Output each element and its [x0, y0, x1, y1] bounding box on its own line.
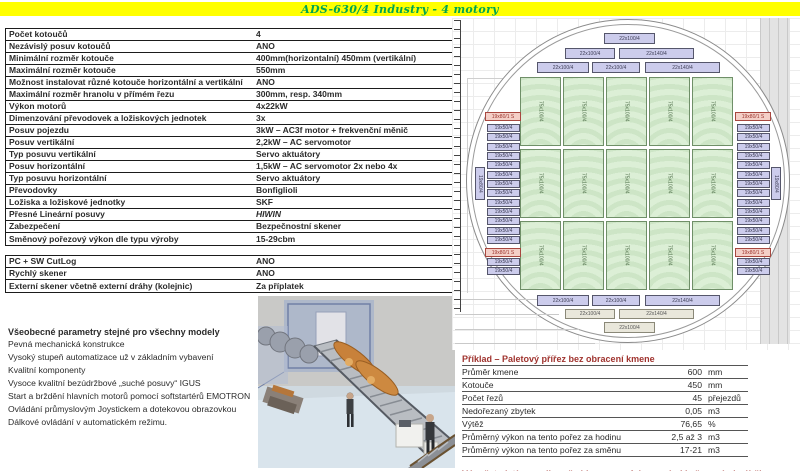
side-board-right-label: 19x50/4: [745, 200, 763, 206]
example-label: Nedořezaný zbytek: [462, 406, 658, 416]
side-board-right: 19x50/4: [737, 199, 770, 207]
example-row: Nedořezaný zbytek0,05m3: [462, 405, 748, 418]
side-board-left: 19x50/4: [487, 124, 520, 132]
green-block: 75x100/4: [520, 77, 561, 146]
machine-illustration: [258, 296, 455, 468]
example-label: Průměrný výkon na tento pořez za hodinu: [462, 432, 658, 442]
green-block-label: 75x100/4: [538, 173, 544, 194]
side-board-right-label: 19x50/4: [745, 268, 763, 274]
example-unit: %: [708, 419, 748, 429]
cut-board-label: 22x100/4: [619, 36, 640, 42]
spec-label: Počet kotoučů: [6, 29, 253, 40]
example-value: 450: [658, 380, 708, 390]
spec-value: 2,2kW – AC servomotor: [253, 137, 456, 148]
spec-label: Převodovky: [6, 185, 253, 196]
dimension-line: [455, 329, 579, 330]
example-value: 45: [658, 393, 708, 403]
side-board-right-label: 19x50/4: [745, 218, 763, 224]
side-board-right-label: 19x50/4: [745, 237, 763, 243]
example-row: Počet řezů45přejezdů: [462, 392, 748, 405]
spec-label: Typ posuvu horizontální: [6, 173, 253, 184]
side-board-left-label: 19x50/4: [495, 268, 513, 274]
spec-label: Dimenzování převodovek a ložiskových jed…: [6, 113, 253, 124]
spec-label: Maximální rozměr hranolu v přímém řezu: [6, 89, 253, 100]
cut-board: 22x140/4: [645, 295, 720, 306]
side-board-right: 19x50/4: [737, 217, 770, 225]
side-board-left-label: 19x50/4: [495, 153, 513, 159]
general-parameter-line: Vysoký stupeň automatizace už v základní…: [8, 351, 258, 364]
side-board-left: 19x50/4: [487, 171, 520, 179]
side-board-right-label: 19x50/4: [745, 153, 763, 159]
general-parameters-title: Všeobecné parametry stejné pro všechny m…: [8, 327, 258, 337]
green-block: 75x100/4: [649, 77, 690, 146]
general-parameter-line: Pevná mechanická konstrukce: [8, 338, 258, 351]
side-board-left: 19x50/4: [487, 267, 520, 275]
example-value: 17-21: [658, 445, 708, 455]
side-board-left: 19x80/1 S: [485, 248, 521, 257]
side-board-right-label: 19x80/1 S: [742, 250, 765, 256]
option-row: PC + SW CutLogANO: [6, 256, 456, 268]
example-row: Průměrný výkon na tento pořez za hodinu2…: [462, 431, 748, 444]
green-block-label: 75x100/4: [710, 245, 716, 266]
spec-row: Maximální rozměr hranolu v přímém řezu30…: [6, 89, 456, 101]
diagram-ruler: [454, 20, 461, 312]
green-block: 75x100/4: [649, 221, 690, 290]
cut-board-label: 22x140/4: [672, 298, 693, 304]
side-board-right: 19x50/4: [737, 258, 770, 266]
example-label: Průměrný výkon na tento pořez za směnu: [462, 445, 658, 455]
options-table: PC + SW CutLogANORychlý skenerANOExterní…: [5, 255, 457, 293]
general-parameter-line: Ovládání průmyslovým Joystickem a doteko…: [8, 403, 258, 416]
green-block: 75x100/4: [520, 149, 561, 218]
green-block-label: 75x100/4: [581, 173, 587, 194]
green-block: 75x100/4: [606, 221, 647, 290]
option-value: ANO: [253, 256, 456, 267]
spec-value: 4x22kW: [253, 101, 456, 112]
spec-label: Minimální rozměr kotouče: [6, 53, 253, 64]
dimension-line: [455, 314, 559, 315]
spec-row: Typ posuvu horizontálníServo aktuátory: [6, 173, 456, 185]
spec-value: Servo aktuátory: [253, 149, 456, 160]
option-value: ANO: [253, 268, 456, 279]
side-board-left-label: 19x50/4: [495, 228, 513, 234]
spec-label: Nezávislý posuv kotoučů: [6, 41, 253, 52]
cut-board: 22x100/4: [592, 62, 640, 73]
cut-board-label: 22x100/4: [553, 65, 574, 71]
example-row: Průměr kmene600mm: [462, 366, 748, 379]
spec-value: 400mm(horizontalní) 450mm (vertikální): [253, 53, 456, 64]
side-board-right: 19x80/1 S: [735, 248, 771, 257]
spec-value: 4: [253, 29, 456, 40]
spec-value: Bonfiglioli: [253, 185, 456, 196]
spec-label: Posuv vertikální: [6, 137, 253, 148]
example-label: Kotouče: [462, 380, 658, 390]
spec-label: Přesné Lineární posuvy: [6, 209, 253, 220]
cut-board: 22x100/4: [604, 322, 655, 333]
side-board-right: 19x50/4: [737, 133, 770, 141]
green-block: 75x100/4: [563, 149, 604, 218]
side-board-left: 19x50/4: [487, 208, 520, 216]
dimension-line: [455, 299, 541, 300]
cut-board: 22x100/4: [604, 33, 655, 44]
side-board-left: 19x50/4: [487, 133, 520, 141]
side-board-left: 19x50/4: [487, 180, 520, 188]
green-block: 75x100/4: [606, 149, 647, 218]
green-block-label: 75x100/4: [538, 245, 544, 266]
spec-label: Možnost instalovat různé kotouče horizon…: [6, 77, 253, 88]
page-title: ADS-630/4 Industry - 4 motory: [301, 3, 499, 16]
example-unit: m3: [708, 432, 748, 442]
cut-board-label: 22x100/4: [580, 51, 601, 57]
side-board-left-label: 19x50/4: [495, 259, 513, 265]
title-bar: ADS-630/4 Industry - 4 motory: [0, 2, 800, 16]
cut-board: 22x100/4: [537, 62, 589, 73]
spec-value: HIWIN: [253, 209, 456, 220]
side-board-left: 19x50/4: [487, 199, 520, 207]
side-board-left-label: 19x50/4: [495, 125, 513, 131]
general-parameters: Všeobecné parametry stejné pro všechny m…: [8, 327, 258, 429]
edge-board-right: 19x80/4: [771, 167, 781, 200]
green-block-label: 75x100/4: [667, 245, 673, 266]
green-block: 75x100/4: [692, 149, 733, 218]
green-block-label: 75x100/4: [581, 245, 587, 266]
side-board-left: 19x50/4: [487, 227, 520, 235]
spec-label: Posuv pojezdu: [6, 125, 253, 136]
green-block: 75x100/4: [649, 149, 690, 218]
spec-label: Zabezpečení: [6, 221, 253, 232]
cut-board-label: 22x100/4: [606, 298, 627, 304]
cut-board-label: 22x100/4: [580, 311, 601, 317]
spec-label: Směnový pořezový výkon dle typu výroby: [6, 234, 253, 245]
cut-board-label: 22x140/4: [646, 311, 667, 317]
spec-value: 1,5kW – AC servomotor 2x nebo 4x: [253, 161, 456, 172]
side-board-right: 19x50/4: [737, 267, 770, 275]
spec-row: Posuv horizontální1,5kW – AC servomotor …: [6, 161, 456, 173]
spec-row: Výkon motorů4x22kW: [6, 101, 456, 113]
spec-value: ANO: [253, 77, 456, 88]
side-board-right: 19x50/4: [737, 161, 770, 169]
green-block: 75x100/4: [692, 221, 733, 290]
side-board-left-label: 19x50/4: [495, 162, 513, 168]
spec-row: Nezávislý posuv kotoučůANO: [6, 41, 456, 53]
spec-value: 3x: [253, 113, 456, 124]
side-board-left-label: 19x50/4: [495, 237, 513, 243]
example-unit: přejezdů: [708, 393, 748, 403]
side-board-left: 19x50/4: [487, 189, 520, 197]
example-value: 600: [658, 367, 708, 377]
side-board-right: 19x50/4: [737, 171, 770, 179]
spec-value: 3kW – AC3f motor + frekvenční měnič: [253, 125, 456, 136]
spec-label: Výkon motorů: [6, 101, 253, 112]
general-parameter-line: Start a brždění hlavních motorů pomocí s…: [8, 390, 258, 403]
cut-board-label: 22x100/4: [606, 65, 627, 71]
side-board-left: 19x50/4: [487, 143, 520, 151]
spec-value: 550mm: [253, 65, 456, 76]
example-label: Výtěž: [462, 419, 658, 429]
example-row: Kotouče450mm: [462, 379, 748, 392]
spec-row: Minimální rozměr kotouče400mm(horizontal…: [6, 53, 456, 65]
cut-board: 22x140/4: [619, 309, 694, 319]
example-unit: m3: [708, 445, 748, 455]
cut-board: 22x140/4: [619, 48, 694, 59]
dimension-line: [455, 343, 595, 344]
spec-row: Ložiska a ložiskové jednotkySKF: [6, 197, 456, 209]
green-block-label: 75x100/4: [581, 101, 587, 122]
example-title: Příklad – Paletový přířez bez obracení k…: [462, 354, 748, 366]
spec-row: PřevodovkyBonfiglioli: [6, 185, 456, 197]
green-block-label: 75x100/4: [624, 101, 630, 122]
side-board-right: 19x50/4: [737, 189, 770, 197]
side-board-left: 19x50/4: [487, 258, 520, 266]
side-board-right-label: 19x50/4: [745, 228, 763, 234]
green-block-label: 75x100/4: [710, 101, 716, 122]
side-board-right-label: 19x50/4: [745, 190, 763, 196]
side-board-right: 19x50/4: [737, 227, 770, 235]
general-parameter-line: Kvalitní komponenty: [8, 364, 258, 377]
side-board-left: 19x50/4: [487, 236, 520, 244]
spec-value: ANO: [253, 41, 456, 52]
side-board-left-label: 19x50/4: [495, 200, 513, 206]
example-label: Počet řezů: [462, 393, 658, 403]
spec-row: Počet kotoučů4: [6, 29, 456, 41]
side-board-right-label: 19x50/4: [745, 259, 763, 265]
side-board-right-label: 19x50/4: [745, 125, 763, 131]
green-block: 75x100/4: [563, 77, 604, 146]
side-board-left-label: 19x50/4: [495, 144, 513, 150]
side-board-left-label: 19x50/4: [495, 190, 513, 196]
side-board-left-label: 19x50/4: [495, 181, 513, 187]
spec-row: Posuv pojezdu3kW – AC3f motor + frekvenč…: [6, 125, 456, 137]
example-value: 76,65: [658, 419, 708, 429]
side-board-right: 19x80/1 S: [735, 112, 771, 121]
green-block-label: 75x100/4: [624, 245, 630, 266]
side-board-right: 19x50/4: [737, 143, 770, 151]
datasheet-page: ADS-630/4 Industry - 4 motory Počet koto…: [0, 0, 800, 471]
option-row: Externí skener včetně externí dráhy (kol…: [6, 280, 456, 292]
option-value: Za příplatek: [253, 281, 456, 292]
cut-board: 22x140/4: [645, 62, 720, 73]
spec-label: Typ posuvu vertikální: [6, 149, 253, 160]
side-board-right: 19x50/4: [737, 236, 770, 244]
general-parameter-line: Dálkové ovládání v automatickém režimu.: [8, 416, 258, 429]
side-board-right: 19x50/4: [737, 180, 770, 188]
green-block: 75x100/4: [692, 77, 733, 146]
example-label: Průměr kmene: [462, 367, 658, 377]
cut-board: 22x100/4: [565, 309, 615, 319]
spec-label: Ložiska a ložiskové jednotky: [6, 197, 253, 208]
side-board-right-label: 19x50/4: [745, 144, 763, 150]
side-board-left: 19x80/1 S: [485, 112, 521, 121]
example-unit: m3: [708, 406, 748, 416]
side-board-right-label: 19x50/4: [745, 172, 763, 178]
side-board-left-label: 19x80/1 S: [492, 114, 515, 120]
spec-row: Směnový pořezový výkon dle typu výroby15…: [6, 233, 456, 245]
example-row: Výtěž76,65%: [462, 418, 748, 431]
side-board-right-label: 19x80/1 S: [742, 114, 765, 120]
green-block-label: 75x100/4: [538, 101, 544, 122]
example-unit: mm: [708, 380, 748, 390]
spec-row: Přesné Lineární posuvyHIWIN: [6, 209, 456, 221]
example-row: Průměrný výkon na tento pořez za směnu17…: [462, 444, 748, 457]
spec-label: Maximální rozměr kotouče: [6, 65, 253, 76]
side-board-left: 19x50/4: [487, 161, 520, 169]
cut-board-label: 22x140/4: [646, 51, 667, 57]
cut-board-label: 22x140/4: [672, 65, 693, 71]
spec-value: 300mm, resp. 340mm: [253, 89, 456, 100]
general-parameter-line: Vysoce kvalitní bezúdržbové „suché posuv…: [8, 377, 258, 390]
cutting-pattern-diagram: 75x100/475x100/475x100/475x100/475x100/4…: [452, 18, 800, 350]
cut-board: 22x100/4: [565, 48, 615, 59]
spec-row: Možnost instalovat různé kotouče horizon…: [6, 77, 456, 89]
spec-value: 15-29cbm: [253, 234, 456, 245]
example-unit: mm: [708, 367, 748, 377]
option-label: Externí skener včetně externí dráhy (kol…: [6, 281, 253, 292]
side-board-left: 19x50/4: [487, 217, 520, 225]
side-board-left-label: 19x50/4: [495, 134, 513, 140]
side-board-right: 19x50/4: [737, 208, 770, 216]
spec-value: Servo aktuátory: [253, 173, 456, 184]
side-board-right: 19x50/4: [737, 152, 770, 160]
example-section: Příklad – Paletový přířez bez obracení k…: [462, 354, 748, 471]
example-value: 0,05: [658, 406, 708, 416]
side-board-right: 19x50/4: [737, 124, 770, 132]
side-board-right-label: 19x50/4: [745, 181, 763, 187]
cut-board-label: 22x100/4: [619, 325, 640, 331]
spec-row: Maximální rozměr kotouče550mm: [6, 65, 456, 77]
spec-value: SKF: [253, 197, 456, 208]
side-board-left-label: 19x50/4: [495, 172, 513, 178]
edge-board-right-label: 19x80/4: [773, 175, 779, 193]
example-value: 2,5 až 3: [658, 432, 708, 442]
green-block-label: 75x100/4: [624, 173, 630, 194]
side-board-right-label: 19x50/4: [745, 209, 763, 215]
side-board-left-label: 19x50/4: [495, 209, 513, 215]
green-block: 75x100/4: [520, 221, 561, 290]
spec-row: Posuv vertikální2,2kW – AC servomotor: [6, 137, 456, 149]
green-block: 75x100/4: [563, 221, 604, 290]
spec-table: Počet kotoučů4Nezávislý posuv kotoučůANO…: [5, 28, 457, 246]
green-block-label: 75x100/4: [667, 101, 673, 122]
spec-row: ZabezpečeníBezpečnostní skener: [6, 221, 456, 233]
side-board-right-label: 19x50/4: [745, 162, 763, 168]
option-label: PC + SW CutLog: [6, 256, 253, 267]
green-block-label: 75x100/4: [710, 173, 716, 194]
spec-row: Dimenzování převodovek a ložiskových jed…: [6, 113, 456, 125]
side-board-left: 19x50/4: [487, 152, 520, 160]
side-board-left-label: 19x50/4: [495, 218, 513, 224]
spec-row: Typ posuvu vertikálníServo aktuátory: [6, 149, 456, 161]
cut-board-label: 22x100/4: [553, 298, 574, 304]
side-board-left-label: 19x80/1 S: [492, 250, 515, 256]
spec-value: Bezpečnostní skener: [253, 221, 456, 232]
cut-board: 22x100/4: [537, 295, 589, 306]
option-row: Rychlý skenerANO: [6, 268, 456, 280]
side-board-right-label: 19x50/4: [745, 134, 763, 140]
edge-board-left: 19x80/4: [475, 167, 485, 200]
option-label: Rychlý skener: [6, 268, 253, 279]
edge-board-left-label: 19x80/4: [477, 175, 483, 193]
cut-board: 22x100/4: [592, 295, 640, 306]
green-block-label: 75x100/4: [667, 173, 673, 194]
spec-label: Posuv horizontální: [6, 161, 253, 172]
green-block: 75x100/4: [606, 77, 647, 146]
